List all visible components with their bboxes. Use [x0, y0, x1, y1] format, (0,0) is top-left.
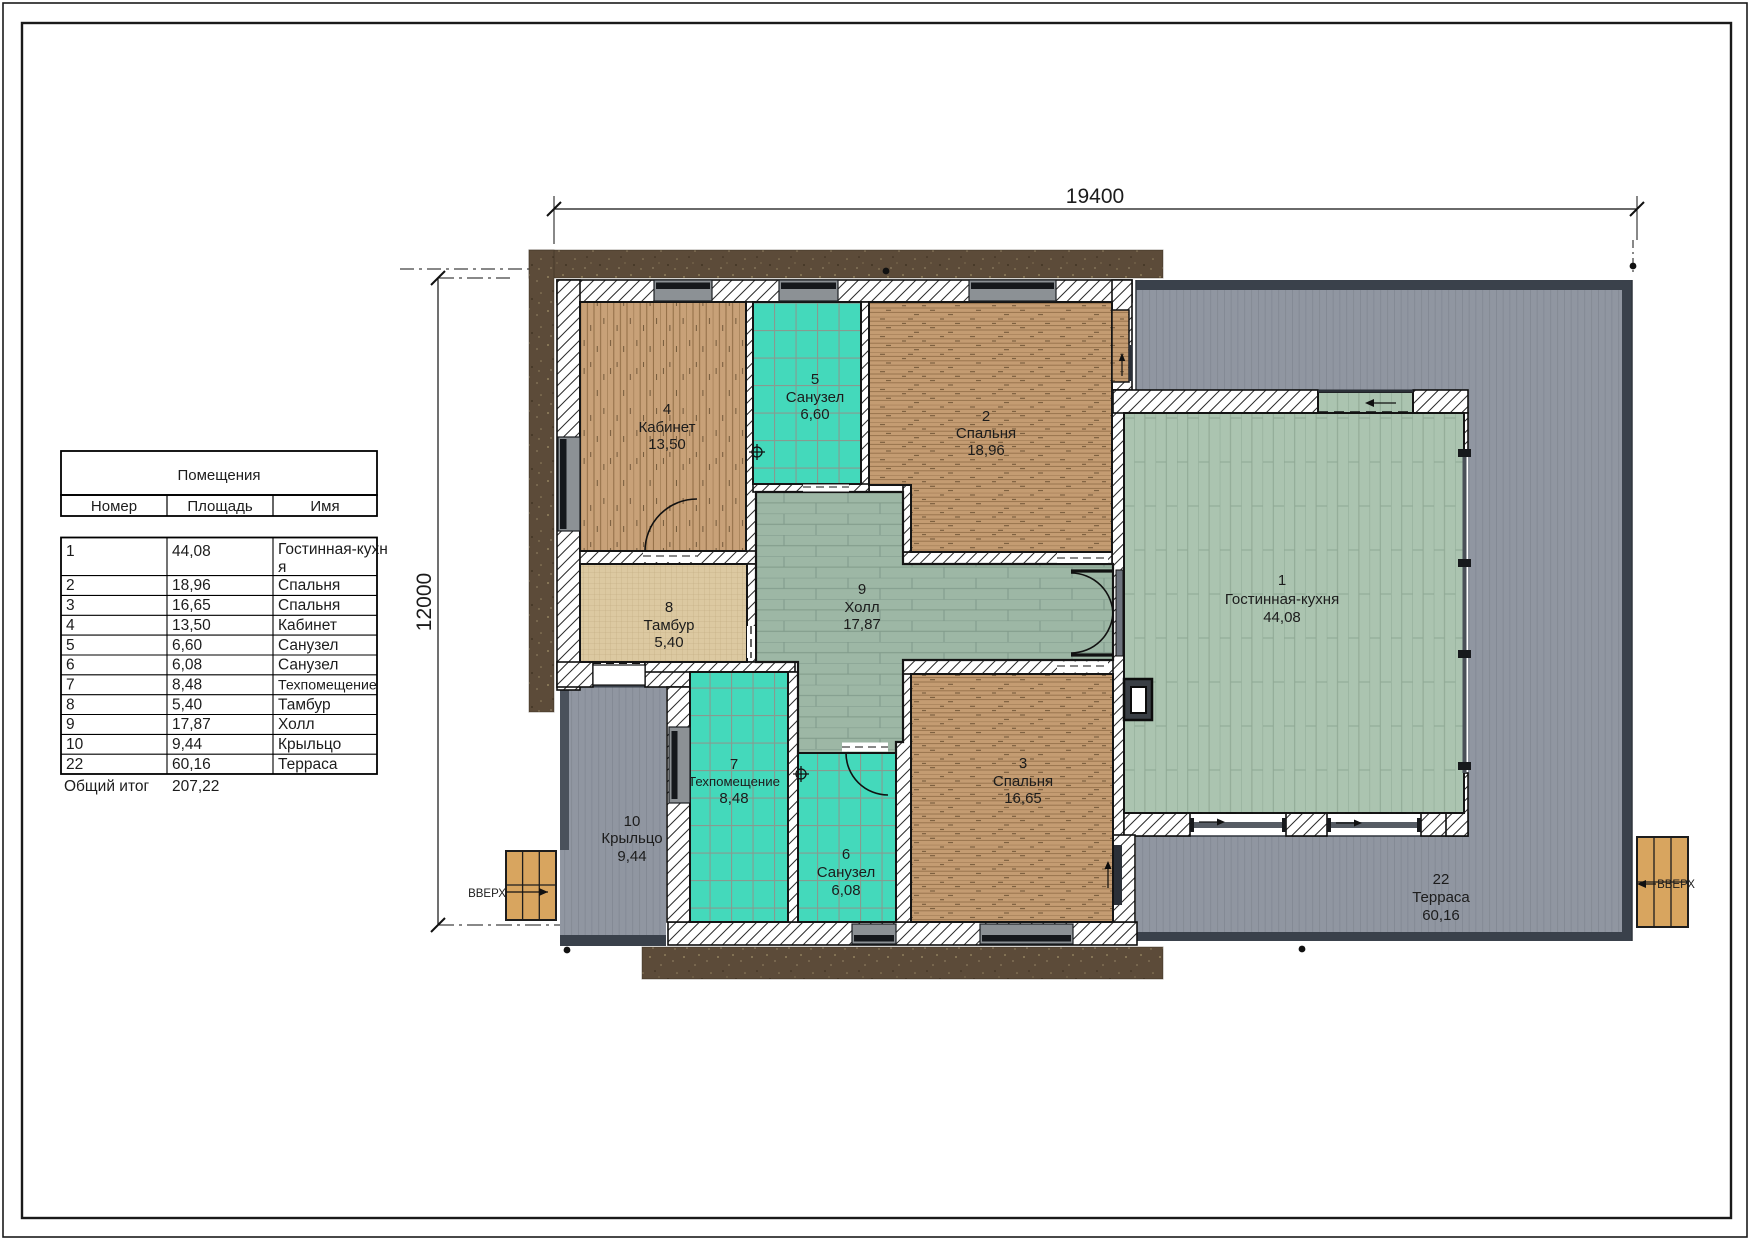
svg-text:Тамбур: Тамбур: [644, 617, 695, 634]
svg-text:8,48: 8,48: [172, 677, 202, 694]
svg-text:22: 22: [1433, 871, 1450, 888]
svg-text:17,87: 17,87: [843, 616, 881, 633]
svg-text:3: 3: [66, 597, 75, 614]
svg-text:12000: 12000: [413, 573, 436, 631]
svg-text:10: 10: [624, 813, 641, 830]
svg-text:207,22: 207,22: [172, 778, 219, 795]
svg-text:6: 6: [842, 846, 850, 863]
svg-text:Имя: Имя: [310, 498, 339, 515]
svg-text:ВВЕРХ: ВВЕРХ: [1657, 879, 1695, 891]
svg-text:6: 6: [66, 657, 75, 674]
svg-text:16,65: 16,65: [1004, 790, 1042, 807]
svg-text:16,65: 16,65: [172, 597, 211, 614]
svg-text:Холл: Холл: [844, 599, 879, 616]
svg-text:19400: 19400: [1066, 185, 1124, 208]
svg-text:Площадь: Площадь: [187, 498, 252, 515]
svg-text:4: 4: [66, 617, 75, 634]
svg-text:9,44: 9,44: [617, 848, 646, 865]
svg-text:8,48: 8,48: [719, 790, 748, 807]
svg-text:Спальня: Спальня: [956, 425, 1016, 442]
svg-text:7: 7: [730, 756, 738, 773]
svg-text:6,60: 6,60: [800, 406, 829, 423]
svg-text:Техпомещение: Техпомещение: [278, 678, 377, 694]
svg-text:5: 5: [811, 371, 819, 388]
svg-text:10: 10: [66, 736, 84, 753]
svg-text:1: 1: [1278, 572, 1286, 589]
svg-text:ВВЕРХ: ВВЕРХ: [468, 888, 506, 900]
svg-text:Спальня: Спальня: [278, 597, 340, 614]
svg-text:Санузел: Санузел: [278, 657, 338, 674]
svg-text:9,44: 9,44: [172, 736, 203, 753]
svg-text:Спальня: Спальня: [993, 773, 1053, 790]
svg-text:2: 2: [66, 577, 75, 594]
svg-text:Тамбур: Тамбур: [278, 696, 331, 713]
svg-text:Холл: Холл: [278, 716, 315, 733]
svg-text:60,16: 60,16: [1422, 907, 1460, 924]
svg-text:Гостинная-кухня: Гостинная-кухня: [1225, 591, 1339, 608]
svg-text:Помещения: Помещения: [177, 467, 260, 484]
svg-text:17,87: 17,87: [172, 716, 211, 733]
svg-text:18,96: 18,96: [967, 442, 1005, 459]
svg-text:8: 8: [66, 696, 75, 713]
svg-text:Терраса: Терраса: [278, 756, 338, 773]
svg-text:Спальня: Спальня: [278, 577, 340, 594]
svg-text:6,60: 6,60: [172, 637, 203, 654]
svg-text:9: 9: [858, 581, 866, 598]
svg-text:Терраса: Терраса: [1412, 889, 1470, 906]
svg-text:5,40: 5,40: [172, 696, 203, 713]
svg-text:13,50: 13,50: [648, 436, 686, 453]
svg-text:1: 1: [66, 543, 75, 560]
svg-text:22: 22: [66, 756, 83, 773]
svg-text:Кабинет: Кабинет: [638, 419, 695, 436]
svg-text:я: я: [278, 559, 286, 576]
svg-text:6,08: 6,08: [831, 882, 860, 899]
svg-text:5,40: 5,40: [654, 634, 683, 651]
svg-text:Общий итог: Общий итог: [64, 778, 150, 795]
svg-text:3: 3: [1019, 755, 1027, 772]
svg-text:6,08: 6,08: [172, 657, 202, 674]
svg-text:44,08: 44,08: [172, 543, 211, 560]
svg-text:Гостинная-кухн: Гостинная-кухн: [278, 541, 388, 558]
svg-text:Крыльцо: Крыльцо: [278, 736, 341, 753]
svg-text:60,16: 60,16: [172, 756, 211, 773]
svg-text:2: 2: [982, 408, 990, 425]
svg-text:Номер: Номер: [91, 498, 137, 515]
svg-text:7: 7: [66, 677, 75, 694]
svg-text:9: 9: [66, 716, 75, 733]
svg-text:Санузел: Санузел: [817, 864, 875, 881]
svg-text:Техпомещение: Техпомещение: [688, 774, 780, 789]
svg-text:18,96: 18,96: [172, 577, 211, 594]
svg-text:Кабинет: Кабинет: [278, 617, 337, 634]
svg-text:13,50: 13,50: [172, 617, 211, 634]
svg-text:8: 8: [665, 599, 673, 616]
svg-text:Крыльцо: Крыльцо: [601, 830, 662, 847]
svg-text:5: 5: [66, 637, 75, 654]
svg-text:4: 4: [663, 401, 671, 418]
svg-text:Санузел: Санузел: [278, 637, 338, 654]
svg-text:44,08: 44,08: [1263, 609, 1301, 626]
svg-text:Санузел: Санузел: [786, 389, 844, 406]
